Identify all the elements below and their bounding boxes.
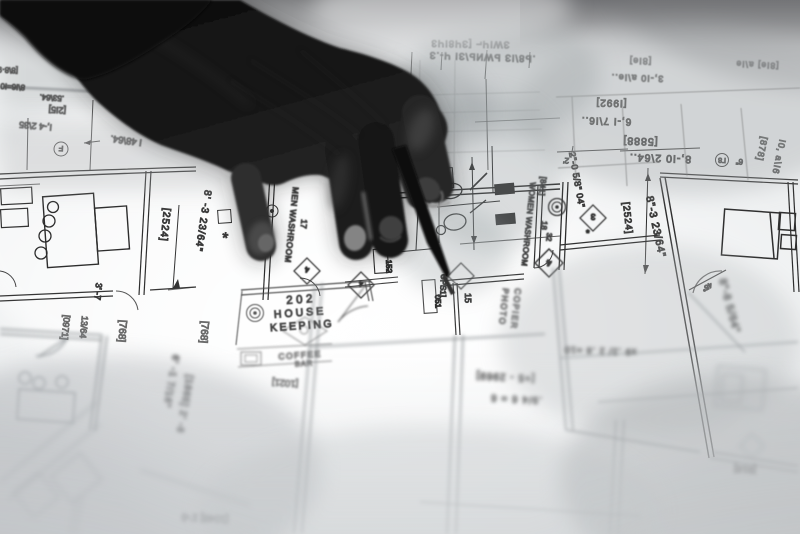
svg-text:202: 202 xyxy=(286,293,316,307)
svg-text:[768]: [768] xyxy=(115,320,128,343)
svg-text:*: * xyxy=(586,228,590,238)
svg-text:.53\64.: .53\64. xyxy=(39,92,64,103)
svg-text:15: 15 xyxy=(463,293,473,303)
svg-text:3: 3 xyxy=(590,212,596,222)
svg-text:17: 17 xyxy=(299,219,310,230)
svg-text:[2I5]: [2I5] xyxy=(48,104,66,115)
svg-text:[768]: [768] xyxy=(197,321,210,344)
svg-text:152: 152 xyxy=(384,260,393,274)
